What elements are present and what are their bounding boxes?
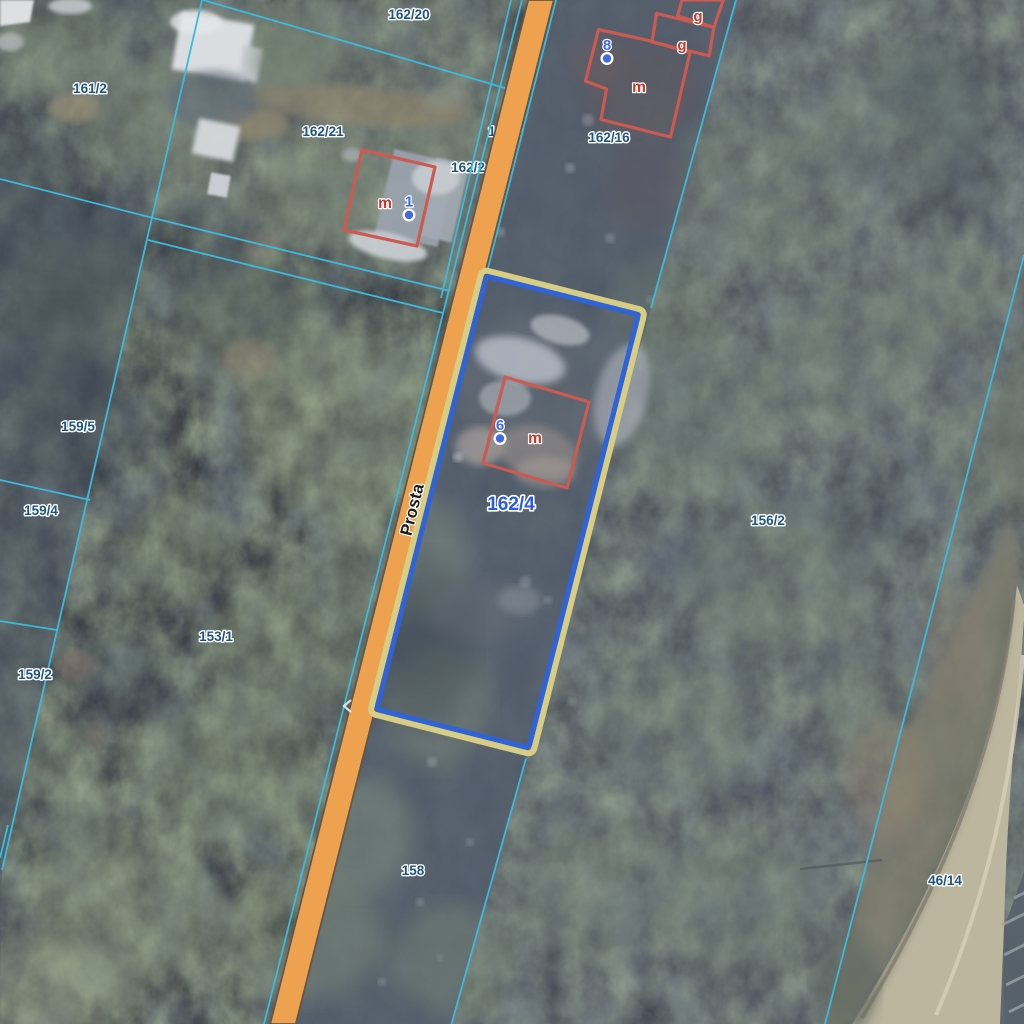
svg-text:162/4: 162/4 [487, 494, 535, 515]
svg-text:46/14: 46/14 [928, 873, 962, 888]
svg-text:162/16: 162/16 [588, 130, 630, 145]
svg-text:156/2: 156/2 [751, 513, 785, 528]
svg-text:m: m [378, 195, 392, 212]
svg-text:162/21: 162/21 [302, 124, 344, 139]
svg-text:g: g [693, 8, 702, 25]
svg-text:8: 8 [603, 37, 611, 54]
svg-text:g: g [677, 37, 686, 54]
svg-text:159/5: 159/5 [61, 419, 95, 434]
svg-text:159/2: 159/2 [18, 667, 52, 682]
svg-text:m: m [528, 430, 542, 447]
svg-text:158: 158 [402, 863, 425, 878]
svg-text:159/4: 159/4 [24, 503, 58, 518]
svg-text:153/1: 153/1 [199, 629, 233, 644]
svg-text:6: 6 [496, 417, 504, 434]
svg-text:1: 1 [405, 194, 413, 211]
svg-text:161/2: 161/2 [73, 81, 107, 96]
svg-text:162/20: 162/20 [388, 7, 429, 22]
svg-text:m: m [632, 79, 646, 96]
